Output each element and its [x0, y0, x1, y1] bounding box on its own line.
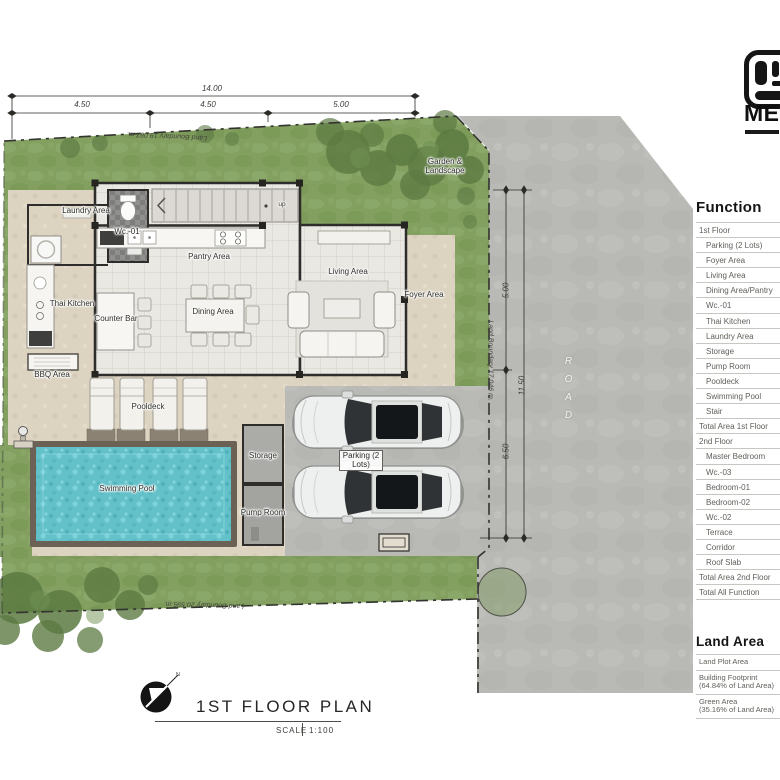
function-table-row: Stair — [696, 404, 780, 419]
function-row-label: Corridor — [706, 543, 735, 552]
north-indicator-letter: N — [176, 672, 180, 678]
label-thai-kitchen: Thai Kitchen — [46, 299, 98, 308]
function-row-label: Master Bedroom — [706, 452, 765, 461]
function-row-label: 2nd Floor — [699, 437, 733, 446]
land-area-row: Land Plot Area — [696, 655, 780, 671]
function-table-row: 1st Floor — [696, 223, 780, 238]
function-table-row: Pump Room — [696, 359, 780, 374]
function-table-row: Wc.-03 — [696, 465, 780, 480]
function-row-label: Parking (2 Lots) — [706, 241, 762, 250]
function-table-row: Bedroom-02 — [696, 495, 780, 510]
function-row-label: Thai Kitchen — [706, 317, 750, 326]
label-pooldeck: Pooldeck — [120, 402, 176, 411]
function-table-row: Thai Kitchen — [696, 314, 780, 329]
function-table-row: Swimming Pool — [696, 389, 780, 404]
tv-console — [318, 231, 390, 244]
function-table-rows: 1st Floor Parking (2 Lots) Foyer Area Li… — [696, 222, 780, 600]
function-table-row: Parking (2 Lots) — [696, 238, 780, 253]
tree-symbol — [478, 568, 526, 616]
label-swimming-pool: Swimming Pool — [95, 484, 159, 493]
function-row-label: Stair — [706, 407, 722, 416]
dim-top-total: 14.00 — [190, 84, 234, 93]
function-row-label: Total Area 1st Floor — [699, 422, 768, 431]
function-row-label: Dining Area/Pantry — [706, 286, 773, 295]
function-table-row: Roof Slab — [696, 555, 780, 570]
function-row-label: Total All Function — [699, 588, 759, 597]
function-row-label: Bedroom-02 — [706, 498, 750, 507]
washing-machine — [31, 236, 61, 263]
scale-value: 1:100 — [309, 726, 334, 735]
land-area-title: Land Area — [696, 634, 780, 649]
dim-right-seg-1: 5.00 — [502, 271, 511, 311]
scale-divider — [302, 723, 303, 736]
dim-top-seg-1: 4.50 — [60, 100, 104, 109]
label-pantry-area: Pantry Area — [185, 252, 233, 261]
function-row-label: Pump Room — [706, 362, 750, 371]
label-pump-room: Pump Room — [234, 508, 292, 517]
coffee-table — [324, 299, 360, 318]
function-row-label: Terrace — [706, 528, 733, 537]
function-row-label: Storage — [706, 347, 734, 356]
function-table-row: Laundry Area — [696, 329, 780, 344]
function-row-label: Living Area — [706, 271, 746, 280]
label-bbq-area: BBQ Area — [28, 370, 76, 379]
label-wc-01: Wc.-01 — [105, 227, 149, 236]
label-dining-area: Dining Area — [188, 307, 238, 316]
label-laundry-area: Laundry Area — [62, 206, 110, 215]
label-counter-bar: Counter Bar — [90, 314, 142, 323]
function-table-row: Dining Area/Pantry — [696, 283, 780, 298]
toilet — [120, 195, 136, 202]
function-row-label: Wc.-02 — [706, 513, 731, 522]
function-table-row: Living Area — [696, 268, 780, 283]
company-logo-tagline-strip — [745, 130, 779, 134]
stove — [215, 230, 246, 246]
boundary-label-right: Land Boundary 17.046 m. — [487, 301, 494, 421]
planter-box — [379, 534, 409, 551]
function-row-label: Roof Slab — [706, 558, 741, 567]
storage-pump-rooms — [243, 425, 283, 545]
function-row-label: Laundry Area — [706, 332, 754, 341]
function-table: Function 1st Floor Parking (2 Lots) Foye… — [696, 199, 780, 600]
function-table-row: Wc.-02 — [696, 510, 780, 525]
dim-top-seg-2: 4.50 — [186, 100, 230, 109]
function-row-label: Wc.-03 — [706, 468, 731, 477]
function-table-row: Terrace — [696, 525, 780, 540]
label-parking: Parking (2 Lots) — [339, 450, 383, 471]
function-table-row: Pooldeck — [696, 374, 780, 389]
function-table-row: Total Area 1st Floor — [696, 419, 780, 434]
title-underline — [155, 721, 341, 722]
function-table-row: Master Bedroom — [696, 449, 780, 464]
land-row-sub: (64.84% of Land Area) — [699, 682, 780, 691]
land-row-label: Land Plot Area — [699, 657, 748, 666]
drawing-title: 1ST FLOOR PLAN — [196, 697, 374, 717]
wc-01-room — [108, 190, 148, 262]
function-row-label: 1st Floor — [699, 226, 730, 235]
function-table-row: Total All Function — [696, 585, 780, 600]
label-garden-landscape: Garden & Landscape — [418, 157, 472, 175]
bbq-counter — [28, 354, 78, 370]
function-table-row: Bedroom-01 — [696, 480, 780, 495]
dim-right-total: 11.50 — [518, 366, 527, 406]
label-living-area: Living Area — [320, 267, 376, 276]
function-row-label: Pooldeck — [706, 377, 739, 386]
north-arrow — [141, 675, 179, 713]
function-row-label: Wc.-01 — [706, 301, 731, 310]
land-row-sub: (35.16% of Land Area) — [699, 706, 780, 715]
land-area-rows: Land Plot Area Building Footprint(64.84%… — [696, 654, 780, 719]
function-row-label: Total Area 2nd Floor — [699, 573, 771, 582]
function-table-row: Corridor — [696, 540, 780, 555]
label-foyer-area: Foyer Area — [400, 290, 448, 299]
function-table-row: Total Area 2nd Floor — [696, 570, 780, 585]
function-row-label: Foyer Area — [706, 256, 745, 265]
function-table-row: 2nd Floor — [696, 434, 780, 449]
company-logo-text: ME — [744, 100, 780, 127]
dim-top-seg-3: 5.00 — [319, 100, 363, 109]
land-area-row: Green Area(35.16% of Land Area) — [696, 695, 780, 719]
function-row-label: Swimming Pool — [706, 392, 761, 401]
function-table-row: Wc.-01 — [696, 298, 780, 313]
land-area-table: Land Area Land Plot Area Building Footpr… — [696, 634, 780, 719]
label-storage: Storage — [238, 451, 288, 460]
label-stair-up: up — [272, 201, 292, 208]
land-area-row: Building Footprint(64.84% of Land Area) — [696, 671, 780, 695]
function-table-title: Function — [696, 199, 780, 216]
sofa — [300, 331, 384, 357]
dim-right-seg-2: 6.50 — [502, 432, 511, 472]
function-table-row: Foyer Area — [696, 253, 780, 268]
site-plan-drawing — [0, 0, 780, 780]
car-1 — [292, 391, 464, 453]
function-row-label: Bedroom-01 — [706, 483, 750, 492]
swimming-pool — [30, 441, 237, 547]
function-table-row: Storage — [696, 344, 780, 359]
road-label: ROAD — [563, 356, 574, 428]
